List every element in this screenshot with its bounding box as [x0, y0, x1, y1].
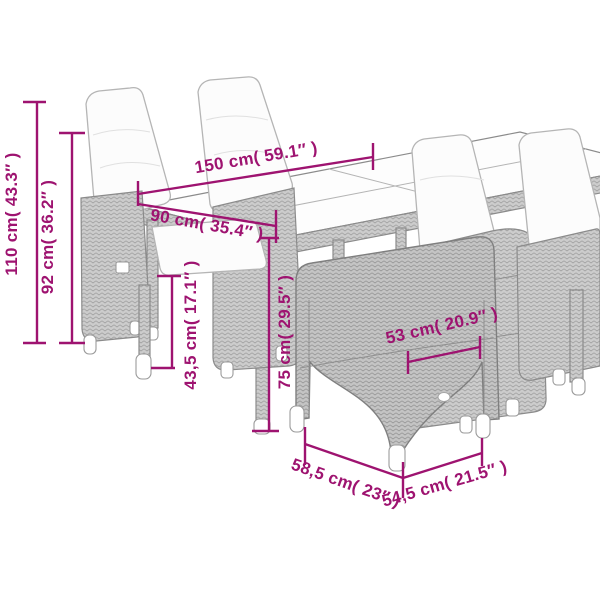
- product-dimension-diagram: 110 cm( 43.3″ ) 92 cm( 36.2″ ) 150 cm( 5…: [0, 0, 600, 600]
- chair-front-back-view: [290, 237, 499, 471]
- dimension-label: 43,5 cm( 17.1″ ): [181, 260, 200, 389]
- chair-rattan-body: [517, 229, 600, 380]
- chair-foot: [476, 414, 490, 438]
- dimension-label: 75 cm( 29.5″ ): [275, 275, 294, 389]
- diagram-canvas: 110 cm( 43.3″ ) 92 cm( 36.2″ ) 150 cm( 5…: [0, 0, 600, 600]
- furniture-illustration: [81, 77, 600, 471]
- chair-right-far: [517, 129, 600, 395]
- chair-foot: [221, 362, 233, 378]
- chair-foot: [136, 354, 151, 379]
- chair-foot: [506, 399, 519, 416]
- recliner-tag: [116, 262, 129, 273]
- chair-foot: [290, 406, 304, 432]
- chair-foot: [553, 369, 565, 385]
- dimension-label: 92 cm( 36.2″ ): [38, 180, 57, 294]
- chair-foot: [572, 378, 585, 395]
- dimension-backrest-height: 92 cm( 36.2″ ): [38, 133, 85, 343]
- dimension-label: 110 cm( 43.3″ ): [2, 152, 21, 275]
- chair-front-leg: [570, 290, 583, 382]
- chair-foot: [84, 335, 96, 354]
- chair-front-leg: [139, 285, 150, 360]
- chair-foot: [460, 416, 472, 433]
- backrest-hole: [438, 393, 450, 402]
